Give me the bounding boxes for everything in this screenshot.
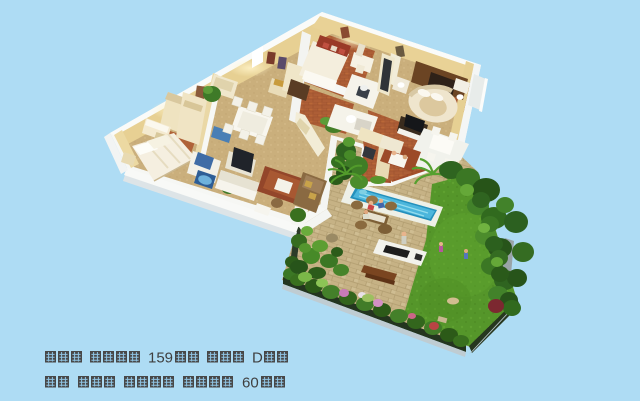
svg-text:60: 60 xyxy=(242,375,259,392)
svg-text:D: D xyxy=(252,350,263,367)
svg-text:159: 159 xyxy=(148,350,173,367)
